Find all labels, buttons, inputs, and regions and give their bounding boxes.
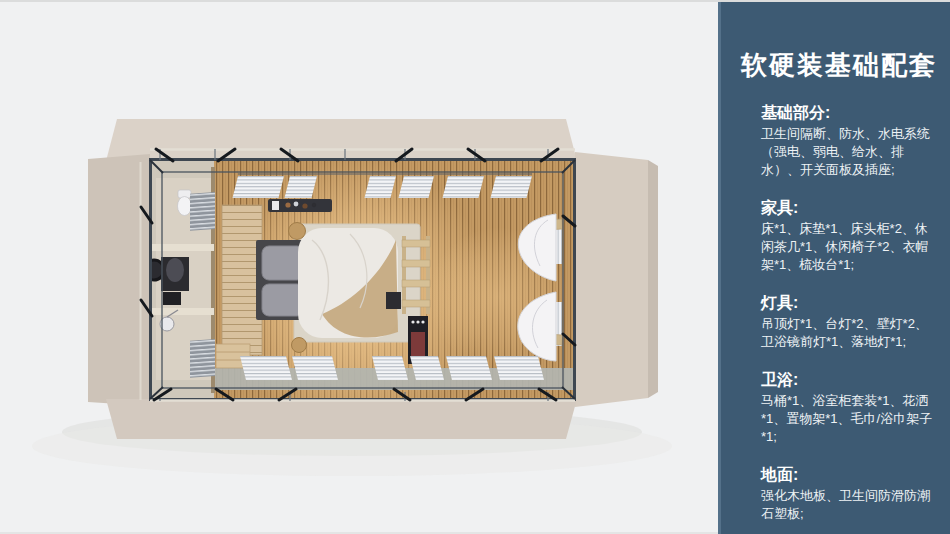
spec-section-body: 马桶*1、浴室柜套装*1、花洒*1、置物架*1、毛巾/浴巾架子*1; bbox=[761, 392, 936, 446]
spec-section-furniture: 家具: 床*1、床垫*1、床头柜*2、休闲茶几*1、休闲椅子*2、衣帽架*1、梳… bbox=[761, 198, 936, 274]
spec-section-body: 床*1、床垫*1、床头柜*2、休闲茶几*1、休闲椅子*2、衣帽架*1、梳妆台*1… bbox=[761, 220, 936, 274]
shell-panel-right bbox=[575, 152, 648, 407]
basket bbox=[292, 338, 307, 353]
toilet bbox=[178, 190, 192, 216]
vanity-stool bbox=[163, 292, 181, 305]
spec-section-basics: 基础部分: 卫生间隔断、防水、水电系统（强电、弱电、给水、排水）、开关面板及插座… bbox=[761, 103, 936, 179]
shell-panel-top bbox=[106, 119, 577, 161]
vent-unit bbox=[190, 339, 215, 378]
bathroom-partition bbox=[152, 308, 214, 315]
spec-section-heading: 家具: bbox=[761, 198, 936, 217]
shell-panel-right-edge bbox=[648, 160, 658, 398]
floorplan-image bbox=[0, 2, 718, 532]
pillow bbox=[262, 284, 304, 316]
sidebar-title: 软硬装基础配套 bbox=[741, 48, 942, 83]
pillow bbox=[262, 246, 304, 280]
basket bbox=[289, 223, 306, 240]
vent-unit bbox=[190, 192, 215, 231]
bedside-table bbox=[386, 292, 401, 309]
spec-sections: 基础部分: 卫生间隔断、防水、水电系统（强电、弱电、给水、排水）、开关面板及插座… bbox=[761, 103, 936, 523]
bathroom-partition bbox=[152, 244, 214, 251]
spec-section-body: 卫生间隔断、防水、水电系统（强电、弱电、给水、排水）、开关面板及插座; bbox=[761, 125, 936, 179]
floorplan-canvas bbox=[0, 2, 718, 532]
slide-page: 软硬装基础配套 基础部分: 卫生间隔断、防水、水电系统（强电、弱电、给水、排水）… bbox=[0, 0, 950, 534]
spec-sidebar: 软硬装基础配套 基础部分: 卫生间隔断、防水、水电系统（强电、弱电、给水、排水）… bbox=[718, 2, 950, 534]
spec-section-flooring: 地面: 强化木地板、卫生间防滑防潮石塑板; bbox=[761, 465, 936, 523]
shell-panel-bottom bbox=[106, 399, 577, 439]
spec-section-bathroom: 卫浴: 马桶*1、浴室柜套装*1、花洒*1、置物架*1、毛巾/浴巾架子*1; bbox=[761, 370, 936, 446]
coat-rack bbox=[268, 199, 332, 212]
spec-section-body: 吊顶灯*1、台灯*2、壁灯*2、卫浴镜前灯*1、落地灯*1; bbox=[761, 315, 936, 351]
spec-section-heading: 灯具: bbox=[761, 293, 936, 312]
spec-section-heading: 基础部分: bbox=[761, 103, 936, 122]
spec-section-heading: 卫浴: bbox=[761, 370, 936, 389]
spec-section-lighting: 灯具: 吊顶灯*1、台灯*2、壁灯*2、卫浴镜前灯*1、落地灯*1; bbox=[761, 293, 936, 351]
spec-section-heading: 地面: bbox=[761, 465, 936, 484]
spec-section-body: 强化木地板、卫生间防滑防潮石塑板; bbox=[761, 487, 936, 523]
